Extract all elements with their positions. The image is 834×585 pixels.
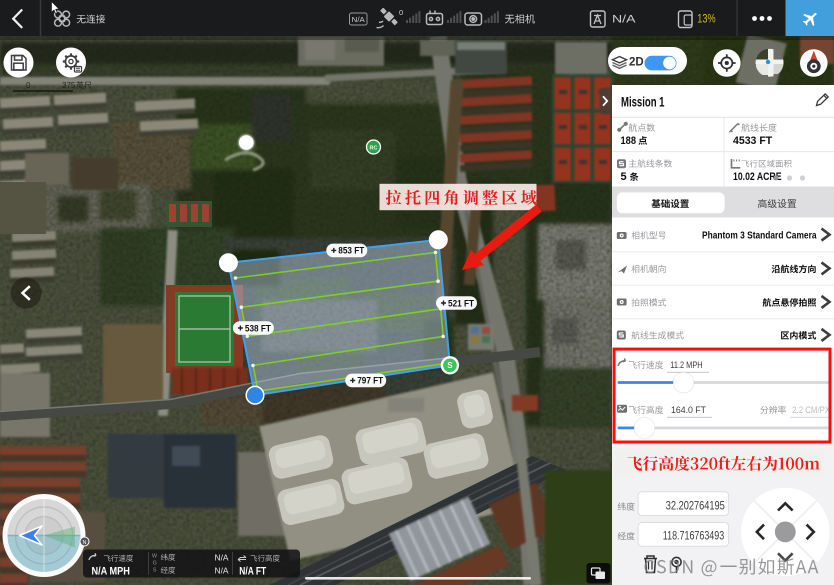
svg-text:118.716763493: 118.716763493 [663,529,725,543]
svg-text:W: W [152,554,157,560]
svg-text:0: 0 [399,8,403,17]
svg-text:521 FT: 521 FT [448,298,474,308]
svg-text:N/A: N/A [612,14,636,26]
svg-text:11.2 MPH: 11.2 MPH [670,360,702,370]
svg-text:375: 375 [62,81,76,90]
svg-text:S: S [447,361,453,370]
svg-text:N/A: N/A [352,15,365,24]
svg-text:2D: 2D [629,57,644,69]
svg-text:13%: 13% [697,14,715,26]
svg-text:N: N [83,540,87,546]
svg-text:5: 5 [621,171,627,183]
svg-text:2.2 CM/PX: 2.2 CM/PX [792,405,830,415]
svg-text:Mission 1: Mission 1 [621,94,665,109]
svg-text:RC: RC [370,146,378,152]
svg-text:0: 0 [26,81,31,90]
svg-text:32.202764195: 32.202764195 [666,499,725,513]
svg-text:S: S [153,568,157,574]
svg-text:797 FT: 797 FT [357,376,383,386]
svg-text:188: 188 [621,135,637,147]
svg-text:N/A FT: N/A FT [239,565,266,577]
svg-text:N/A MPH: N/A MPH [92,565,130,577]
svg-text:Phantom 3 Standard Camera: Phantom 3 Standard Camera [702,231,817,242]
svg-text:N/A: N/A [215,552,229,562]
svg-text:N/A: N/A [215,565,229,575]
svg-text:G: G [153,561,157,567]
svg-text:538 FT: 538 FT [245,323,271,333]
svg-text:853 FT: 853 FT [338,246,364,256]
svg-text:164.0 FT: 164.0 FT [671,405,706,415]
svg-text:4533 FT: 4533 FT [733,135,772,147]
